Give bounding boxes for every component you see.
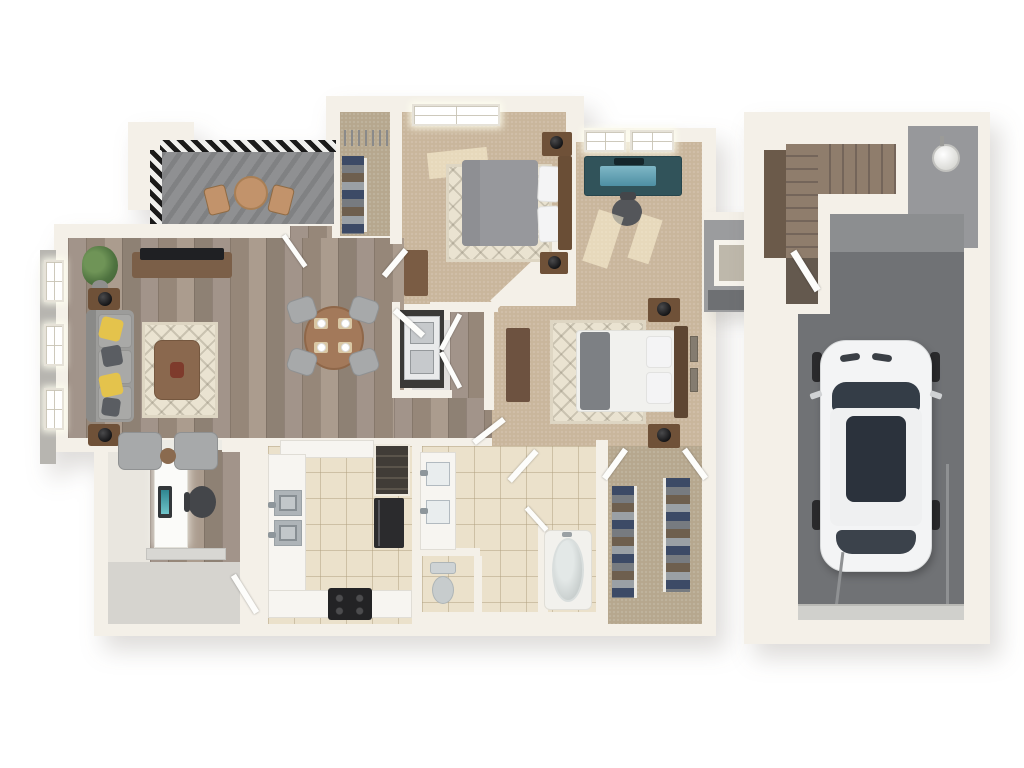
water-heater-pipe xyxy=(940,136,944,146)
garage-floor xyxy=(830,252,964,316)
garage-door xyxy=(798,604,964,620)
car-rear-window xyxy=(836,530,916,554)
water-heater xyxy=(932,144,960,172)
garage-door-track xyxy=(946,464,949,612)
garage-inner-wall-face xyxy=(830,214,964,254)
staircase-lower-flight xyxy=(786,144,818,258)
car-sunroof xyxy=(846,416,906,502)
garage-unit xyxy=(0,0,1024,768)
staircase-upper-flight xyxy=(818,144,896,194)
stair-stringer xyxy=(764,150,786,258)
wall-segment xyxy=(818,194,908,206)
floorplan-stage xyxy=(0,0,1024,768)
